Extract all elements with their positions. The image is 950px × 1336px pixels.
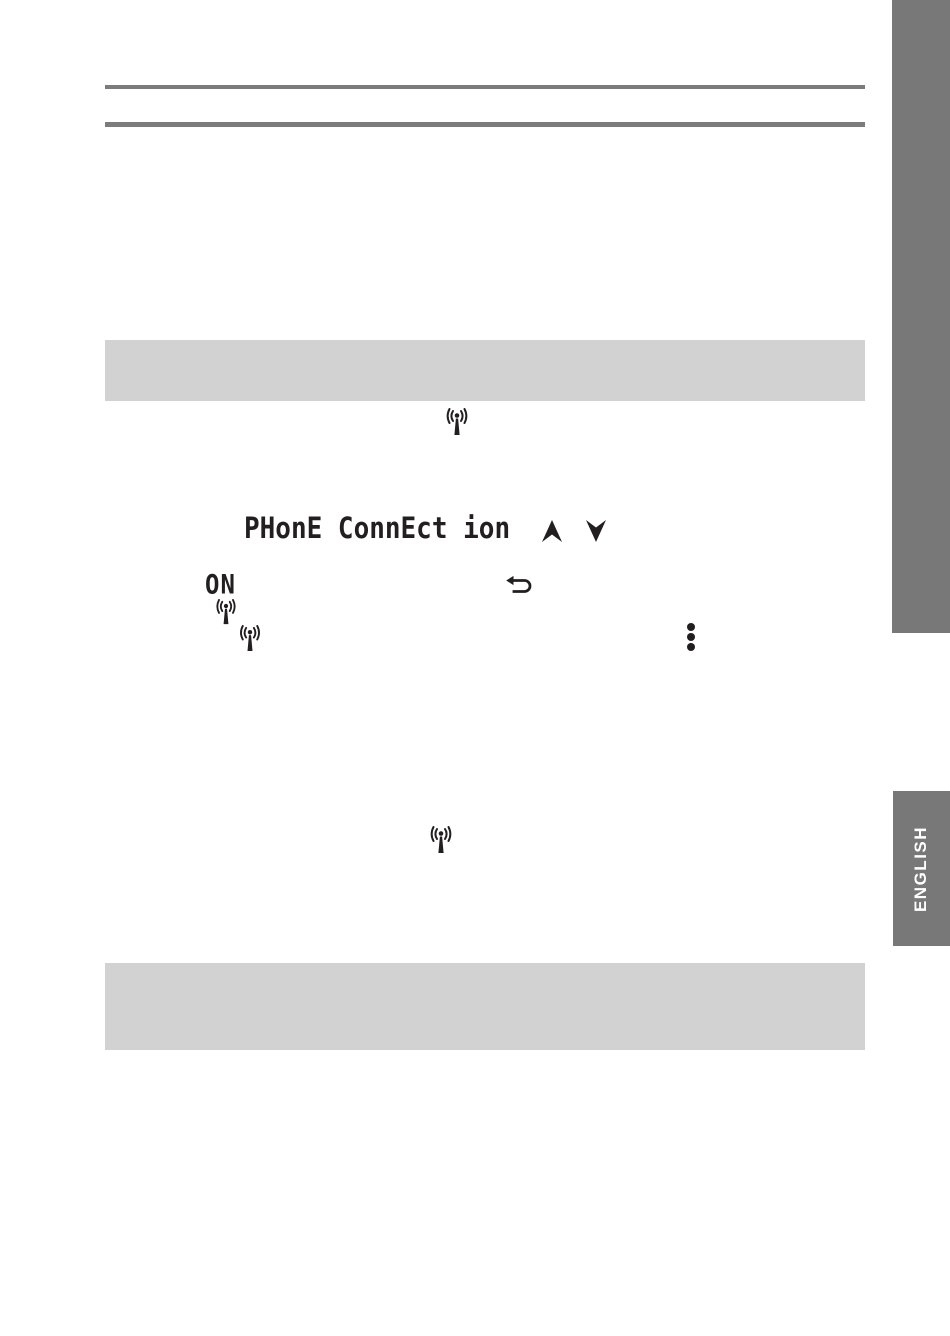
kebab-menu-icon [687, 623, 695, 651]
note-band-bottom [105, 963, 865, 1050]
header-rule-bottom [105, 122, 865, 127]
up-arrow-icon [541, 519, 563, 543]
return-arrow-icon [504, 575, 534, 597]
lcd-menu-text: PHonE ConnEct ion [244, 512, 510, 546]
lcd-status-text: ON [205, 569, 236, 600]
broadcast-antenna-icon [445, 408, 469, 436]
down-arrow-icon [585, 519, 607, 543]
manual-page: ENGLISH PHonE ConnEct ion ON [0, 0, 950, 1336]
language-tab-label: ENGLISH [912, 825, 932, 911]
note-band-top [105, 340, 865, 401]
language-tab: ENGLISH [893, 791, 950, 946]
side-column-bar [892, 0, 950, 633]
broadcast-antenna-icon [214, 599, 238, 625]
broadcast-antenna-icon [238, 625, 262, 652]
header-rule-top [105, 85, 865, 89]
broadcast-antenna-icon [429, 826, 453, 854]
